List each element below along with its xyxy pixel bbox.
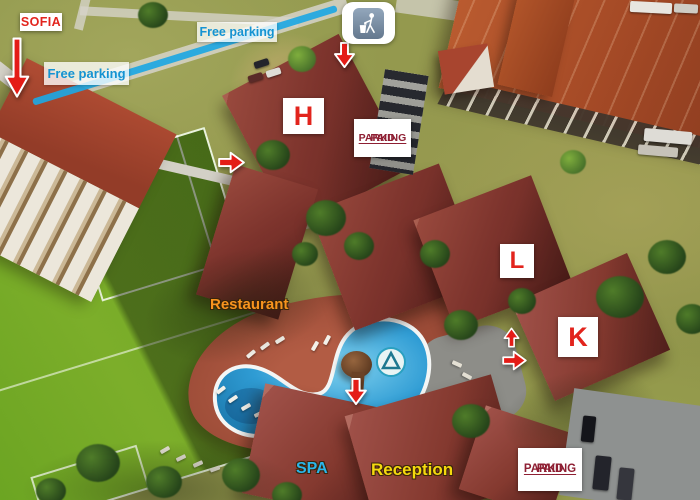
sofia-text: SOFIA xyxy=(21,15,61,29)
sofia-direction-label: SOFIA xyxy=(20,13,62,31)
tree xyxy=(452,404,490,438)
building-k-label: K xyxy=(558,317,598,357)
free-parking-text-2: Free parking xyxy=(199,25,274,39)
paid-text-top-2: PARKING xyxy=(359,130,407,146)
building-k-text: K xyxy=(568,322,588,353)
tree xyxy=(256,140,290,170)
arrow-up-k xyxy=(503,326,520,349)
restaurant-text: Restaurant xyxy=(210,296,288,313)
building-h-text: H xyxy=(294,101,314,132)
building-l-text: L xyxy=(510,247,525,275)
arrow-down-reception xyxy=(344,378,368,405)
paid-parking-label-bottom: PAID PARKING xyxy=(518,448,582,491)
litter-bin-icon xyxy=(353,8,384,39)
arrow-right-h-wing xyxy=(218,151,245,174)
tree xyxy=(222,458,260,492)
tree xyxy=(288,46,316,72)
arrow-down-sofia xyxy=(4,36,30,100)
truck xyxy=(630,1,673,14)
tree xyxy=(146,466,182,498)
tree xyxy=(292,242,318,266)
truck xyxy=(674,3,698,13)
free-parking-label-1: Free parking xyxy=(44,62,129,85)
arrow-down-top-entrance xyxy=(333,42,356,68)
tree xyxy=(676,304,700,334)
tree xyxy=(560,150,586,174)
tree xyxy=(76,444,120,482)
tree xyxy=(138,2,168,28)
spa-text: SPA xyxy=(296,460,328,478)
tree xyxy=(596,276,644,318)
tree xyxy=(344,232,374,260)
paid-text-bottom-2: PARKING xyxy=(524,461,576,479)
arrow-right-k xyxy=(502,350,527,371)
car xyxy=(581,415,597,442)
small-house xyxy=(438,43,494,94)
reception-text: Reception xyxy=(371,460,453,480)
building-l-label: L xyxy=(500,244,534,278)
aerial-photo-map: SOFIA Free parking Free parking H PAID P… xyxy=(0,0,700,500)
litter-bin-icon-badge xyxy=(342,2,395,44)
free-parking-label-2: Free parking xyxy=(197,22,277,42)
tree xyxy=(508,288,536,314)
tree xyxy=(648,240,686,274)
tree xyxy=(36,478,66,500)
building-h-label: H xyxy=(283,98,324,134)
tree xyxy=(420,240,450,268)
truck xyxy=(638,144,679,157)
paid-parking-label-top: PAID PARKING xyxy=(354,119,411,157)
free-parking-text-1: Free parking xyxy=(47,66,125,81)
tree xyxy=(306,200,346,236)
tree xyxy=(444,310,478,340)
